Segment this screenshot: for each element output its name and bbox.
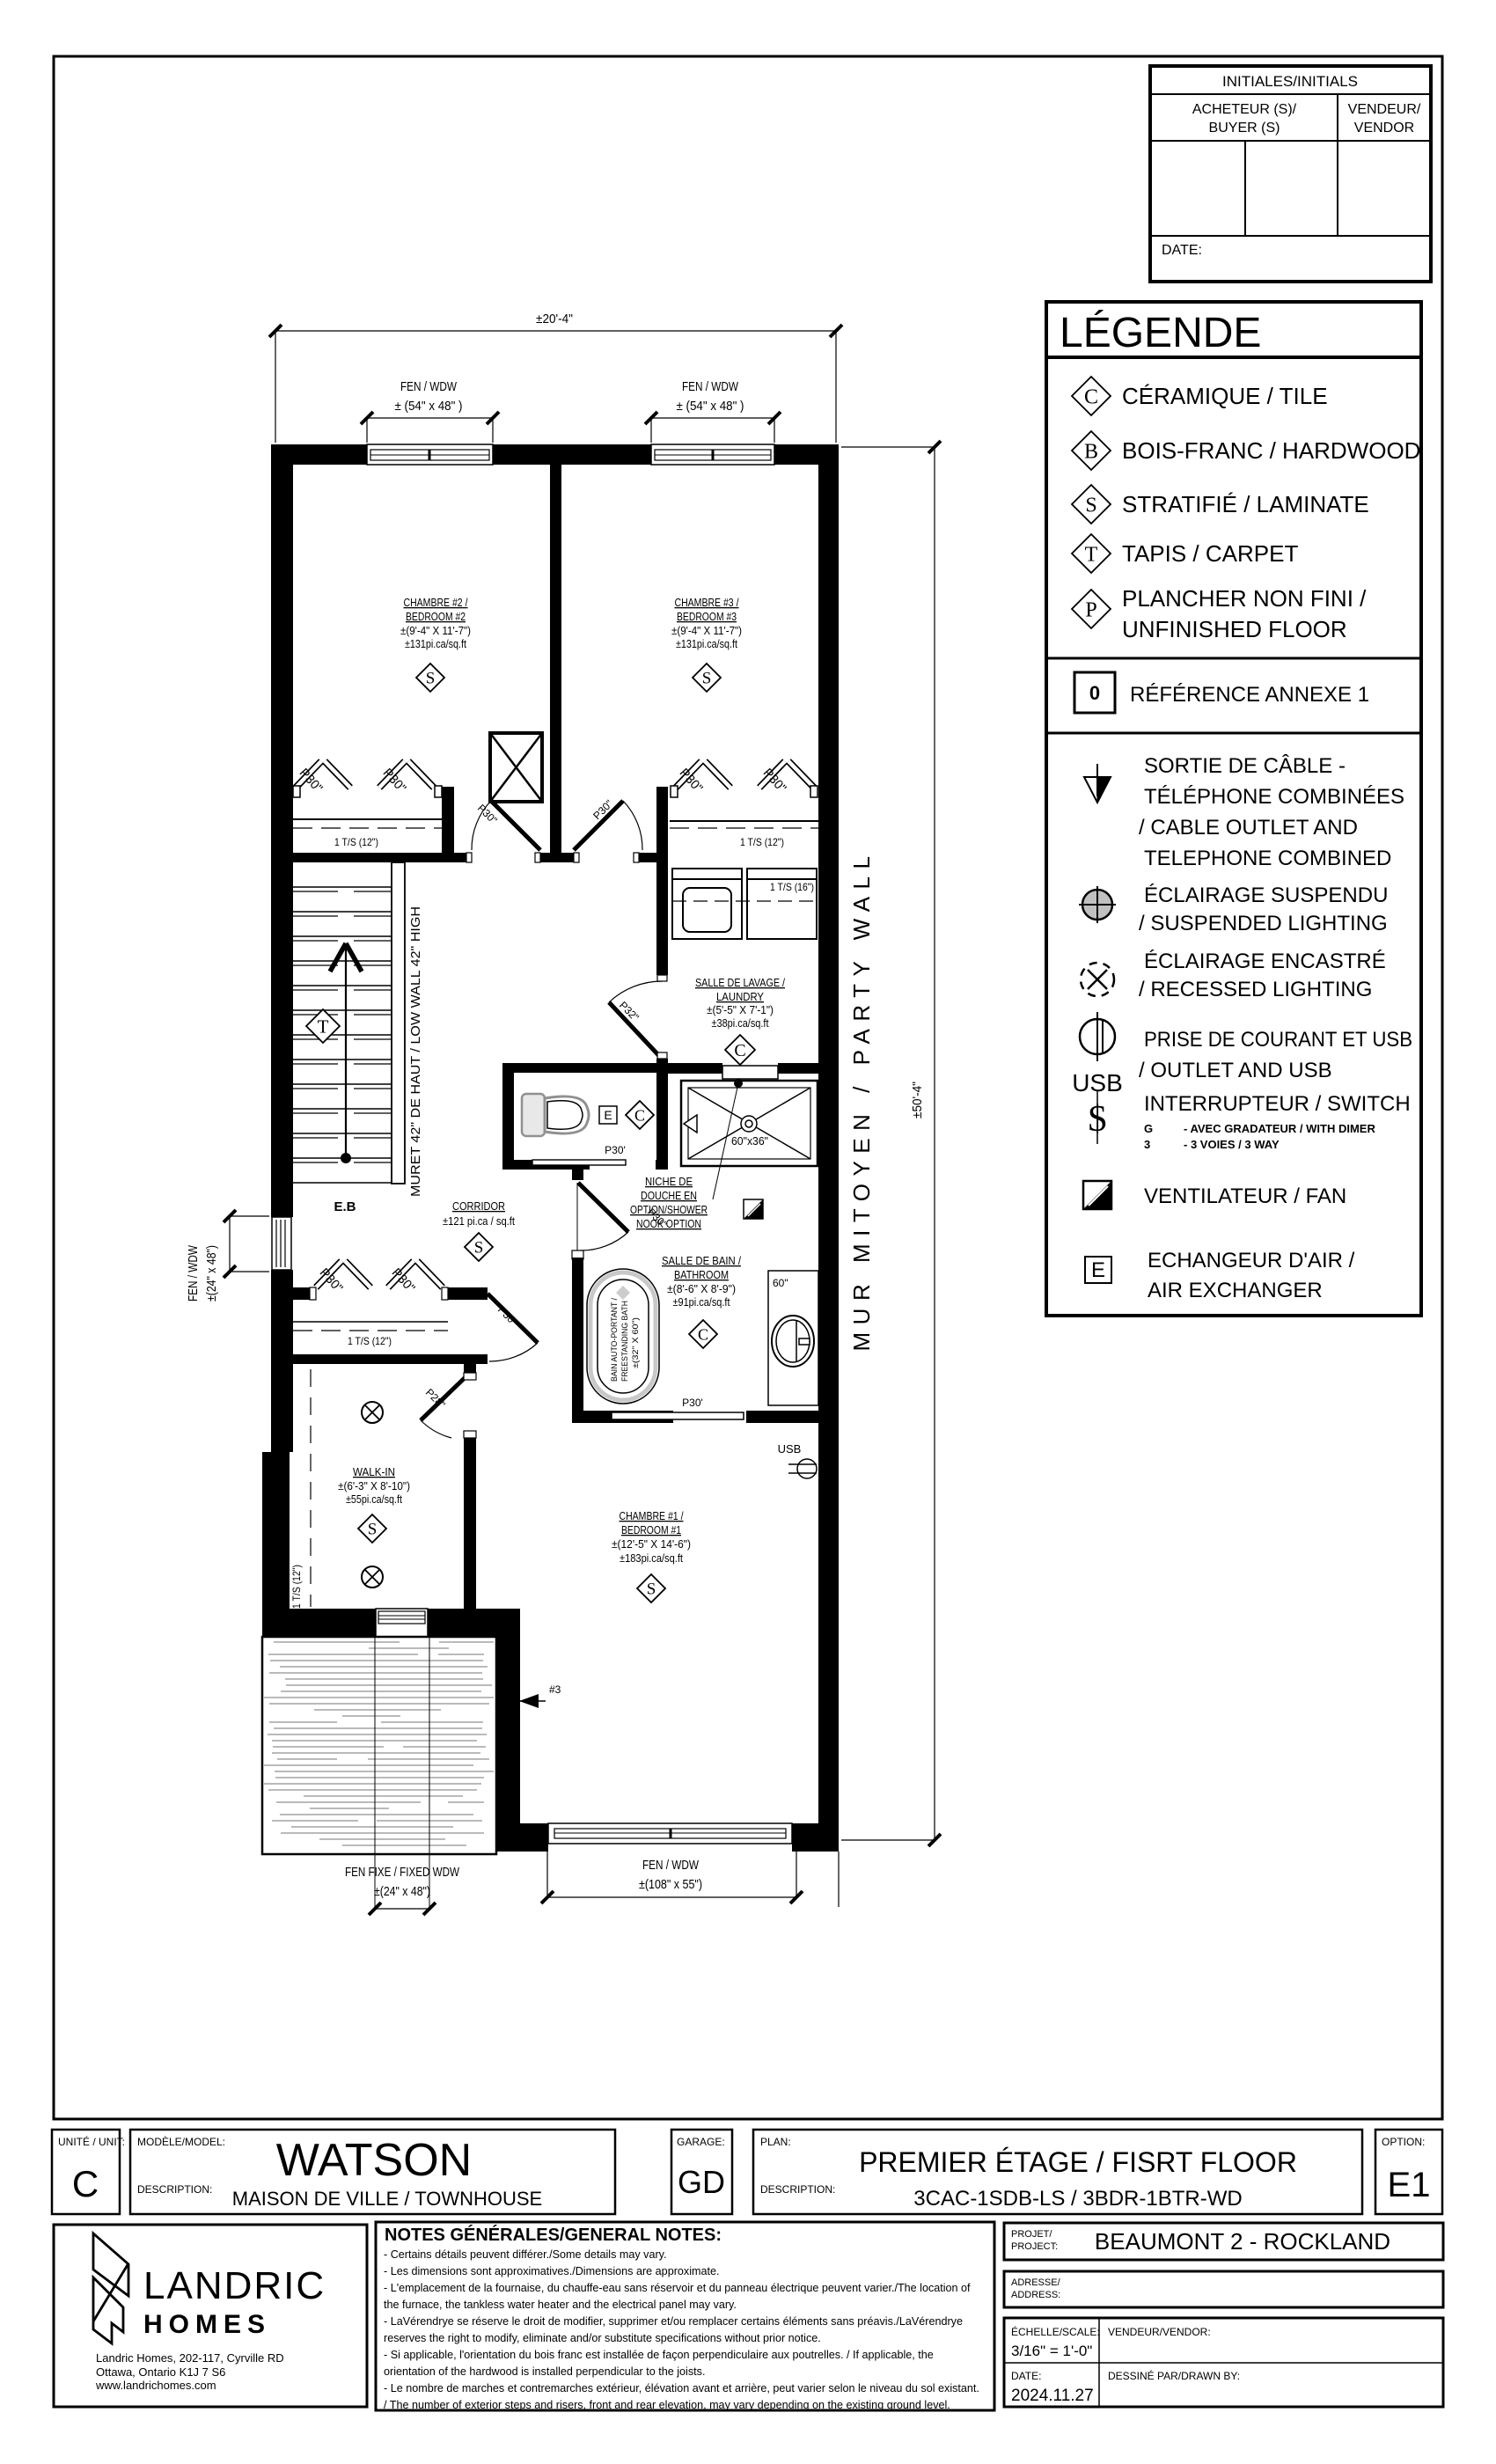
svg-text:LÉGENDE: LÉGENDE [1060,310,1261,356]
svg-text:SORTIE DE CÂBLE -: SORTIE DE CÂBLE - [1144,754,1346,778]
svg-text:FREESTANDING BATH: FREESTANDING BATH [620,1301,630,1382]
svg-text:±121 pi.ca / sq.ft: ±121 pi.ca / sq.ft [443,1214,515,1228]
svg-text:C: C [1084,385,1098,408]
svg-text:SALLE DE LAVAGE /: SALLE DE LAVAGE / [695,976,785,989]
svg-text:BEDROOM #3: BEDROOM #3 [677,610,737,623]
svg-text:#3: #3 [549,1683,561,1696]
svg-text:MAISON DE VILLE / TOWNHOUSE: MAISON DE VILLE / TOWNHOUSE [232,2188,542,2210]
svg-text:PROJECT:: PROJECT: [1011,2241,1058,2252]
svg-text:C: C [698,1325,708,1343]
svg-text:±(108" x 55"): ±(108" x 55") [639,1877,702,1892]
svg-text:±38pi.ca/sq.ft: ±38pi.ca/sq.ft [712,1016,769,1030]
svg-text:±(24" x 48"): ±(24" x 48") [374,1884,430,1899]
svg-text:- 3 VOIES / 3 WAY: - 3 VOIES / 3 WAY [1184,1138,1280,1151]
svg-text:PROJET/: PROJET/ [1011,2229,1052,2240]
svg-text:OPTION/SHOWER: OPTION/SHOWER [630,1203,708,1216]
svg-text:RÉFÉRENCE ANNEXE 1: RÉFÉRENCE ANNEXE 1 [1130,683,1369,707]
svg-text:FEN / WDW: FEN / WDW [400,379,458,394]
svg-text:LAUNDRY: LAUNDRY [716,990,764,1003]
svg-text:C: C [72,2163,99,2204]
svg-text:T: T [318,1016,329,1037]
svg-text:orientation of the hardwood is: orientation of the hardwood is installed… [384,2365,705,2378]
svg-text:3: 3 [1144,1138,1150,1151]
svg-text:ÉCLAIRAGE SUSPENDU: ÉCLAIRAGE SUSPENDU [1144,884,1388,907]
svg-text:PLAN:: PLAN: [760,2136,791,2148]
svg-text:DESCRIPTION:: DESCRIPTION: [760,2183,835,2196]
svg-text:C: C [734,1041,745,1060]
svg-text:S: S [426,670,436,688]
svg-text:SALLE DE BAIN /: SALLE DE BAIN / [662,1254,741,1267]
svg-text:CHAMBRE #1 /: CHAMBRE #1 / [620,1509,684,1522]
svg-text:VENDEUR/: VENDEUR/ [1348,102,1421,117]
svg-text:Landric Homes, 202-117, Cyrvil: Landric Homes, 202-117, Cyrville RD [96,2351,284,2365]
svg-text:±20'-4": ±20'-4" [536,312,573,326]
svg-text:NICHE DE: NICHE DE [645,1175,693,1188]
svg-text:ECHANGEUR D'AIR /: ECHANGEUR D'AIR / [1148,1249,1355,1272]
svg-text:E1: E1 [1388,2166,1431,2204]
svg-text:BUYER (S): BUYER (S) [1209,121,1280,136]
svg-text:1 T/S (12"): 1 T/S (12") [740,836,784,848]
svg-text:ADDRESS:: ADDRESS: [1011,2290,1060,2300]
svg-text:- Les dimensions sont approxi: - Les dimensions sont approximatives./Di… [384,2265,719,2277]
svg-text:±183pi.ca/sq.ft: ±183pi.ca/sq.ft [620,1551,683,1565]
svg-text:TAPIS / CARPET: TAPIS / CARPET [1122,540,1298,567]
svg-text:OPTION:: OPTION: [1382,2136,1425,2148]
svg-text:FEN / WDW: FEN / WDW [186,1244,201,1302]
svg-text:CHAMBRE #3 /: CHAMBRE #3 / [675,596,739,609]
svg-text:C: C [634,1106,645,1124]
svg-text:S: S [368,1521,378,1539]
svg-text:1 T/S (12"): 1 T/S (12") [334,836,378,848]
svg-text:TÉLÉPHONE COMBINÉES: TÉLÉPHONE COMBINÉES [1144,785,1404,809]
svg-text:1 T/S (16"): 1 T/S (16") [770,881,814,893]
svg-text:www.landrichomes.com: www.landrichomes.com [95,2379,216,2392]
svg-text:E: E [604,1108,612,1122]
svg-text:BAIN AUTO-PORTANT /: BAIN AUTO-PORTANT / [610,1298,620,1382]
svg-text:±131pi.ca/sq.ft: ±131pi.ca/sq.ft [676,637,737,650]
svg-text:±(6'-3" X 8'-10"): ±(6'-3" X 8'-10") [338,1479,410,1492]
svg-text:ÉCHELLE/SCALE:: ÉCHELLE/SCALE: [1011,2325,1100,2338]
svg-text:BEAUMONT 2 - ROCKLAND: BEAUMONT 2 - ROCKLAND [1095,2228,1390,2255]
svg-text:WATSON: WATSON [276,2135,472,2186]
svg-text:FEN / WDW: FEN / WDW [642,1858,700,1873]
svg-text:WALK-IN: WALK-IN [353,1465,395,1478]
svg-text:1 T/S (12"): 1 T/S (12") [348,1335,392,1347]
svg-text:PRISE DE COURANT ET USB: PRISE DE COURANT ET USB [1144,1028,1412,1052]
svg-text:LANDRIC: LANDRIC [143,2264,326,2307]
svg-text:1 T/S (12"): 1 T/S (12") [290,1565,303,1609]
svg-text:NOTES GÉNÉRALES/GENERAL NOTES:: NOTES GÉNÉRALES/GENERAL NOTES: [385,2225,722,2245]
svg-text:/ CABLE OUTLET AND: / CABLE OUTLET AND [1139,816,1358,840]
svg-text:S: S [647,1580,656,1599]
svg-text:DESSINÉ PAR/DRAWN BY:: DESSINÉ PAR/DRAWN BY: [1108,2369,1240,2382]
svg-text:BEDROOM #2: BEDROOM #2 [406,610,466,623]
svg-text:FEN / WDW: FEN / WDW [682,379,739,394]
svg-text:±(12'-5" X 14'-6"): ±(12'-5" X 14'-6") [612,1537,691,1551]
svg-text:INTERRUPTEUR / SWITCH: INTERRUPTEUR / SWITCH [1144,1092,1411,1116]
svg-text:DESCRIPTION:: DESCRIPTION: [137,2183,212,2196]
svg-text:/ OUTLET AND USB: / OUTLET AND USB [1139,1059,1332,1082]
svg-text:MUR MITOYEN / PARTY WALL: MUR MITOYEN / PARTY WALL [848,849,875,1352]
svg-text:MODÈLE/MODEL:: MODÈLE/MODEL: [137,2135,225,2148]
svg-text:±(24" x 48"): ±(24" x 48") [204,1245,219,1302]
svg-text:± (54" x 48" ): ± (54" x 48" ) [677,399,744,414]
svg-text:B: B [1084,440,1098,463]
svg-text:E: E [1091,1258,1105,1282]
svg-text:- L'emplacement de la fournai: - L'emplacement de la fournaise, du chau… [384,2282,971,2294]
svg-text:ADRESSE/: ADRESSE/ [1011,2277,1061,2288]
svg-text:S: S [702,670,712,688]
svg-text:FEN FIXE / FIXED WDW: FEN FIXE / FIXED WDW [345,1865,460,1880]
svg-text:P30': P30' [682,1397,703,1409]
svg-text:±55pi.ca/sq.ft: ±55pi.ca/sq.ft [346,1492,402,1506]
svg-text:/ SUSPENDED LIGHTING: / SUSPENDED LIGHTING [1139,912,1388,935]
svg-text:CÉRAMIQUE / TILE: CÉRAMIQUE / TILE [1122,383,1328,409]
svg-text:the furnace, the tankless wate: the furnace, the tankless water heater a… [384,2299,737,2311]
svg-text:T: T [1085,543,1098,566]
svg-text:NOOK OPTION: NOOK OPTION [636,1217,701,1230]
svg-text:DATE:: DATE: [1011,2370,1041,2382]
svg-text:±(9'-4" X 11'-7"): ±(9'-4" X 11'-7") [671,624,742,637]
svg-text:± (54" x 48" ): ± (54" x 48" ) [395,399,463,414]
svg-text:- LaVérendrye se réserve le d: - LaVérendrye se réserve le droit de mod… [384,2315,963,2328]
svg-text:G: G [1144,1122,1153,1135]
svg-text:P30': P30' [605,1144,626,1156]
svg-text:60": 60" [773,1277,788,1289]
svg-text:reserves the right to modify,: reserves the right to modify, eliminate … [384,2332,821,2344]
svg-text:GARAGE:: GARAGE: [677,2136,725,2148]
svg-text:/ RECESSED LIGHTING: / RECESSED LIGHTING [1139,978,1372,1001]
svg-text:INITIALES/INITIALS: INITIALES/INITIALS [1222,73,1358,90]
svg-text:DATE:: DATE: [1162,243,1202,258]
svg-text:STRATIFIÉ / LAMINATE: STRATIFIÉ / LAMINATE [1122,491,1369,517]
svg-text:- Certains détails peuvent di: - Certains détails peuvent différer./Som… [384,2248,667,2261]
svg-text:ÉCLAIRAGE ENCASTRÉ: ÉCLAIRAGE ENCASTRÉ [1144,950,1386,973]
svg-text:±131pi.ca/sq.ft: ±131pi.ca/sq.ft [405,637,466,650]
svg-text:UNITÉ / UNIT:: UNITÉ / UNIT: [58,2135,125,2148]
svg-text:±(9'-4" X 11'-7"): ±(9'-4" X 11'-7") [400,624,471,637]
svg-text:UNFINISHED FLOOR: UNFINISHED FLOOR [1122,616,1347,642]
svg-text:±91pi.ca/sq.ft: ±91pi.ca/sq.ft [673,1295,730,1309]
svg-text:60"x36": 60"x36" [731,1134,768,1148]
svg-text:ACHETEUR (S)/: ACHETEUR (S)/ [1192,102,1297,117]
svg-text:P: P [1085,598,1096,621]
svg-text:Ottawa, Ontario K1J 7 S6: Ottawa, Ontario K1J 7 S6 [96,2365,225,2379]
svg-text:USB: USB [778,1442,802,1456]
svg-text:±(32" X 60"): ±(32" X 60") [631,1317,641,1368]
svg-text:3CAC-1SDB-LS / 3BDR-1BTR-WD: 3CAC-1SDB-LS / 3BDR-1BTR-WD [913,2187,1242,2211]
svg-text:PREMIER ÉTAGE / FISRT FLOOR: PREMIER ÉTAGE / FISRT FLOOR [859,2146,1297,2178]
svg-text:AIR EXCHANGER: AIR EXCHANGER [1148,1279,1323,1302]
svg-text:/ The number of exterior steps: / The number of exterior steps and riser… [384,2399,950,2411]
svg-text:- Le nombre de marches et con: - Le nombre de marches et contremarches … [384,2382,979,2394]
svg-text:E.B: E.B [334,1199,356,1214]
svg-text:±50'-4": ±50'-4" [910,1082,925,1118]
svg-text:CHAMBRE #2 /: CHAMBRE #2 / [404,596,468,609]
svg-text:VENDOR: VENDOR [1354,121,1414,136]
svg-text:±(8'-6" X 8'-9"): ±(8'-6" X 8'-9") [667,1282,736,1295]
svg-text:BEDROOM #1: BEDROOM #1 [621,1523,681,1536]
svg-text:GD: GD [678,2164,725,2200]
svg-text:MURET 42" DE HAUT / LOW WALL 4: MURET 42" DE HAUT / LOW WALL 42" HIGH [408,906,423,1197]
svg-text:BATHROOM: BATHROOM [674,1268,729,1281]
svg-text:±(5'-5" X 7'-1"): ±(5'-5" X 7'-1") [707,1003,774,1016]
svg-text:DOUCHE EN: DOUCHE EN [641,1189,697,1202]
svg-text:- AVEC GRADATEUR / WITH DIMER: - AVEC GRADATEUR / WITH DIMER [1184,1122,1375,1135]
svg-text:S: S [474,1239,484,1258]
svg-text:HOMES: HOMES [143,2310,271,2339]
svg-text:PLANCHER NON FINI /: PLANCHER NON FINI / [1122,585,1367,612]
svg-text:BOIS-FRANC / HARDWOOD: BOIS-FRANC / HARDWOOD [1122,437,1420,464]
svg-text:VENDEUR/VENDOR:: VENDEUR/VENDOR: [1108,2326,1211,2338]
svg-text:- Si applicable, l'orientatio: - Si applicable, l'orientation du bois f… [384,2349,934,2361]
svg-text:VENTILATEUR / FAN: VENTILATEUR / FAN [1144,1184,1346,1208]
svg-text:CORRIDOR: CORRIDOR [452,1199,505,1213]
svg-text:0: 0 [1089,682,1100,704]
svg-text:TELEPHONE COMBINED: TELEPHONE COMBINED [1144,847,1391,870]
svg-text:2024.11.27: 2024.11.27 [1011,2387,1094,2405]
svg-text:S: S [1085,494,1096,517]
svg-text:3/16" = 1'-0": 3/16" = 1'-0" [1011,2343,1092,2359]
